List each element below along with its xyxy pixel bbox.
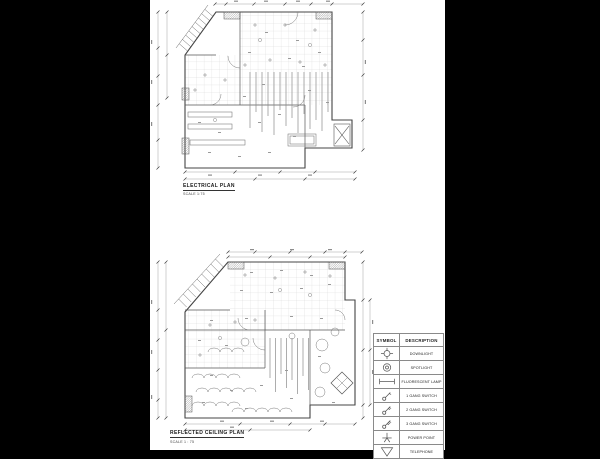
fluorescent-lamp-strips [270, 338, 309, 394]
one-gang-switch-icon [374, 389, 400, 403]
spotlight-icon [374, 361, 400, 375]
legend-row: POWER POINT [374, 431, 444, 445]
legend-header-description: DESCRIPTION [400, 334, 444, 347]
stair-ramp [174, 254, 223, 307]
legend-description: POWER POINT [400, 431, 444, 445]
screenshot-root: { "document": { "background_color": "#00… [0, 0, 600, 450]
fluorescent-lamp-icon [374, 375, 400, 389]
downlight-icon [374, 347, 400, 361]
legend-description: FLUORESCENT LAMP [400, 375, 444, 389]
legend-description: SPOTLIGHT [400, 361, 444, 375]
legend-description: 3 GANG SWITCH [400, 417, 444, 431]
reflected-ceiling-plan-drawing [151, 249, 373, 432]
legend-description: DOWNLIGHT [400, 347, 444, 361]
legend-body: DOWNLIGHT SPOTLIGHT FLUORESCENT LAMP 1 G… [374, 347, 444, 459]
legend-description: 1 GANG SWITCH [400, 389, 444, 403]
legend-header-row: SYMBOL DESCRIPTION [374, 334, 444, 347]
stair-ramp [176, 5, 213, 51]
reflected-ceiling-plan-title: REFLECTED CEILING PLAN [170, 431, 244, 438]
legend-header-symbol: SYMBOL [374, 334, 400, 347]
equipment-box [334, 124, 350, 146]
legend-description: 2 GANG SWITCH [400, 403, 444, 417]
three-gang-switch-icon [374, 417, 400, 431]
electrical-plan-title: ELECTRICAL PLAN [183, 184, 235, 191]
legend-row: 2 GANG SWITCH [374, 403, 444, 417]
reflected-ceiling-plan-scale: SCALE 1 : 75 [170, 440, 194, 444]
electrical-plan-scale: SCALE 1:75 [183, 192, 205, 196]
legend-row: 3 GANG SWITCH [374, 417, 444, 431]
legend-row: DOWNLIGHT [374, 347, 444, 361]
legend-row: 1 GANG SWITCH [374, 389, 444, 403]
legend-row: FLUORESCENT LAMP [374, 375, 444, 389]
legend-row: TELEPHONE [374, 445, 444, 459]
legend-description: TELEPHONE [400, 445, 444, 459]
electrical-plan-drawing [151, 1, 366, 181]
legend-table: SYMBOL DESCRIPTION DOWNLIGHT SPOTLIGHT F… [373, 333, 444, 459]
legend-row: SPOTLIGHT [374, 361, 444, 375]
power-point-icon [374, 431, 400, 445]
diamond-feature [331, 372, 353, 394]
two-gang-switch-icon [374, 403, 400, 417]
telephone-icon [374, 445, 400, 459]
counters [188, 112, 316, 146]
drawing-sheet: ELECTRICAL PLAN SCALE 1:75 REFLECTED CEI… [150, 0, 445, 450]
